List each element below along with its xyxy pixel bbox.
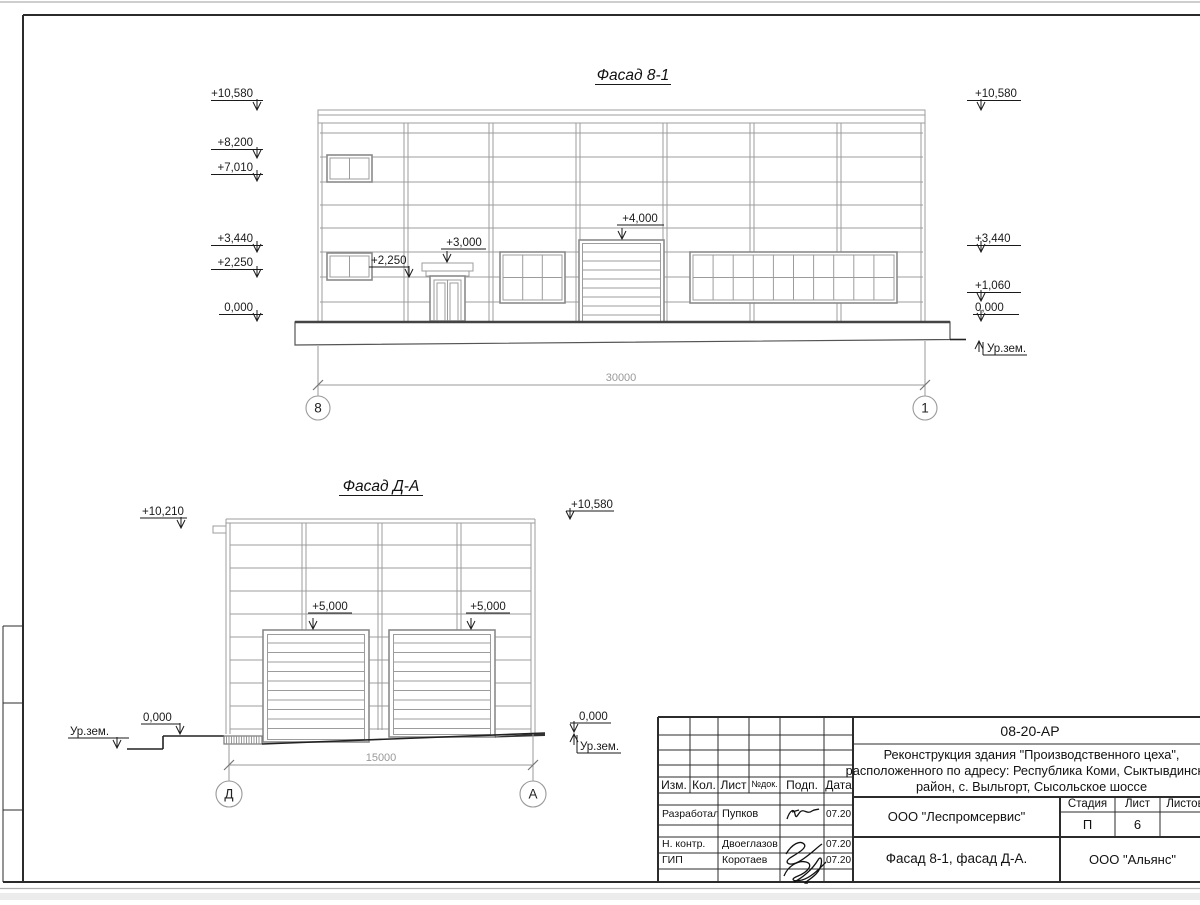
axis-label: 1 [921,401,929,416]
ground-level-label: Ур.зем. [580,741,619,753]
project-line: район, с. Выльгорт, Сысольское шоссе [916,779,1147,795]
facade1-right-elevation-marks: +10,580 +3,440 +1,060 0,000 Ур.зем. [967,88,1027,355]
facade2-dimension: 15000 Д А [216,734,546,807]
elevation-mark: +1,060 [975,280,1011,292]
elevation-mark: +10,580 [975,88,1017,100]
gate-mark: +5,000 [470,601,506,613]
grate-hatch [224,736,262,744]
row-name: Двоеглазов [719,837,779,853]
row-name: Коротаев [719,853,779,869]
signature-scribble [778,838,834,885]
axis-label: Д [224,787,233,802]
rev-header-dok: №док. [749,777,780,793]
elevation-mark: +7,010 [218,162,254,174]
elevation-mark: +2,250 [218,257,254,269]
sectional-door-2 [389,630,495,737]
facade2-title: Фасад Д-А [343,478,420,495]
dimension-value: 30000 [606,372,637,384]
stage-header: Стадия [1060,797,1115,812]
rev-header-list: Лист [718,777,749,793]
row-role: ГИП [659,853,717,869]
gate-mark: +5,000 [312,601,348,613]
elevation-mark: 0,000 [224,302,253,314]
axis-label: А [528,787,537,802]
stage-value: П [1060,812,1115,837]
gate-mark: +4,000 [622,213,658,225]
list-header: Лист [1115,797,1160,812]
listov-header: Листов [1160,797,1200,812]
zero-mark: 0,000 [143,712,172,724]
row-role: Разработал [659,805,717,825]
row-role: Н. контр. [659,837,717,853]
ground-level-label: Ур.зем. [987,343,1026,355]
elevation-mark: +10,580 [571,499,613,511]
sectional-door-1 [263,630,369,742]
facade1-title: Фасад 8-1 [597,67,670,84]
sectional-gate [579,240,664,322]
door-side-mark: +2,250 [371,255,407,267]
client-org: ООО "Альянс" [1060,837,1200,882]
facade-8-1-drawing: +10,580 +8,200 +7,010 +3,440 +2,250 0,00… [211,67,1027,420]
axis-label: 8 [314,401,322,416]
doc-number: 08-20-АР [855,718,1200,744]
window-lower-left [327,253,372,280]
drawing-sheet: +10,580 +8,200 +7,010 +3,440 +2,250 0,00… [0,0,1200,900]
project-line: Реконструкция здания "Производственного … [884,747,1180,763]
dimension-value: 15000 [366,752,397,764]
rev-header-podp: Подп. [780,777,824,793]
facade1-left-elevation-marks: +10,580 +8,200 +7,010 +3,440 +2,250 0,00… [211,88,263,321]
elevation-mark: +10,580 [211,88,253,100]
entrance-door [422,263,473,321]
elevation-mark: +10,210 [142,506,184,518]
window-six-pane [500,252,565,303]
elevation-mark: +3,440 [218,233,254,245]
facade1-dimension: 30000 8 1 [306,341,937,420]
sheet-number: 6 [1115,812,1160,837]
sheet-subject: Фасад 8-1, фасад Д-А. [855,837,1058,882]
design-org: ООО "Леспромсервис" [855,797,1058,837]
window-upper-left [327,155,372,182]
project-description: Реконструкция здания "Производственного … [853,746,1200,795]
canopy-mark: +3,000 [446,237,482,249]
row-date: 07.20 [824,805,853,825]
ground-level-label: Ур.зем. [70,726,109,738]
signature-pupkov [783,806,821,824]
rev-header-data: Дата [824,777,853,793]
rev-header-izm: Изм. [658,777,690,793]
rev-header-kol: Кол. [690,777,718,793]
elevation-mark: +8,200 [218,137,254,149]
plinth [295,322,966,345]
facade-d-a-drawing: +10,210 +10,580 +5,000 +5,000 0,000 Ур.з… [68,478,621,807]
row-name: Пупков [719,805,779,825]
zero-mark: 0,000 [579,711,608,723]
project-line: расположенного по адресу: Республика Ком… [846,763,1200,779]
elevation-mark: 0,000 [975,302,1004,314]
ribbon-window [690,252,897,303]
elevation-mark: +3,440 [975,233,1011,245]
